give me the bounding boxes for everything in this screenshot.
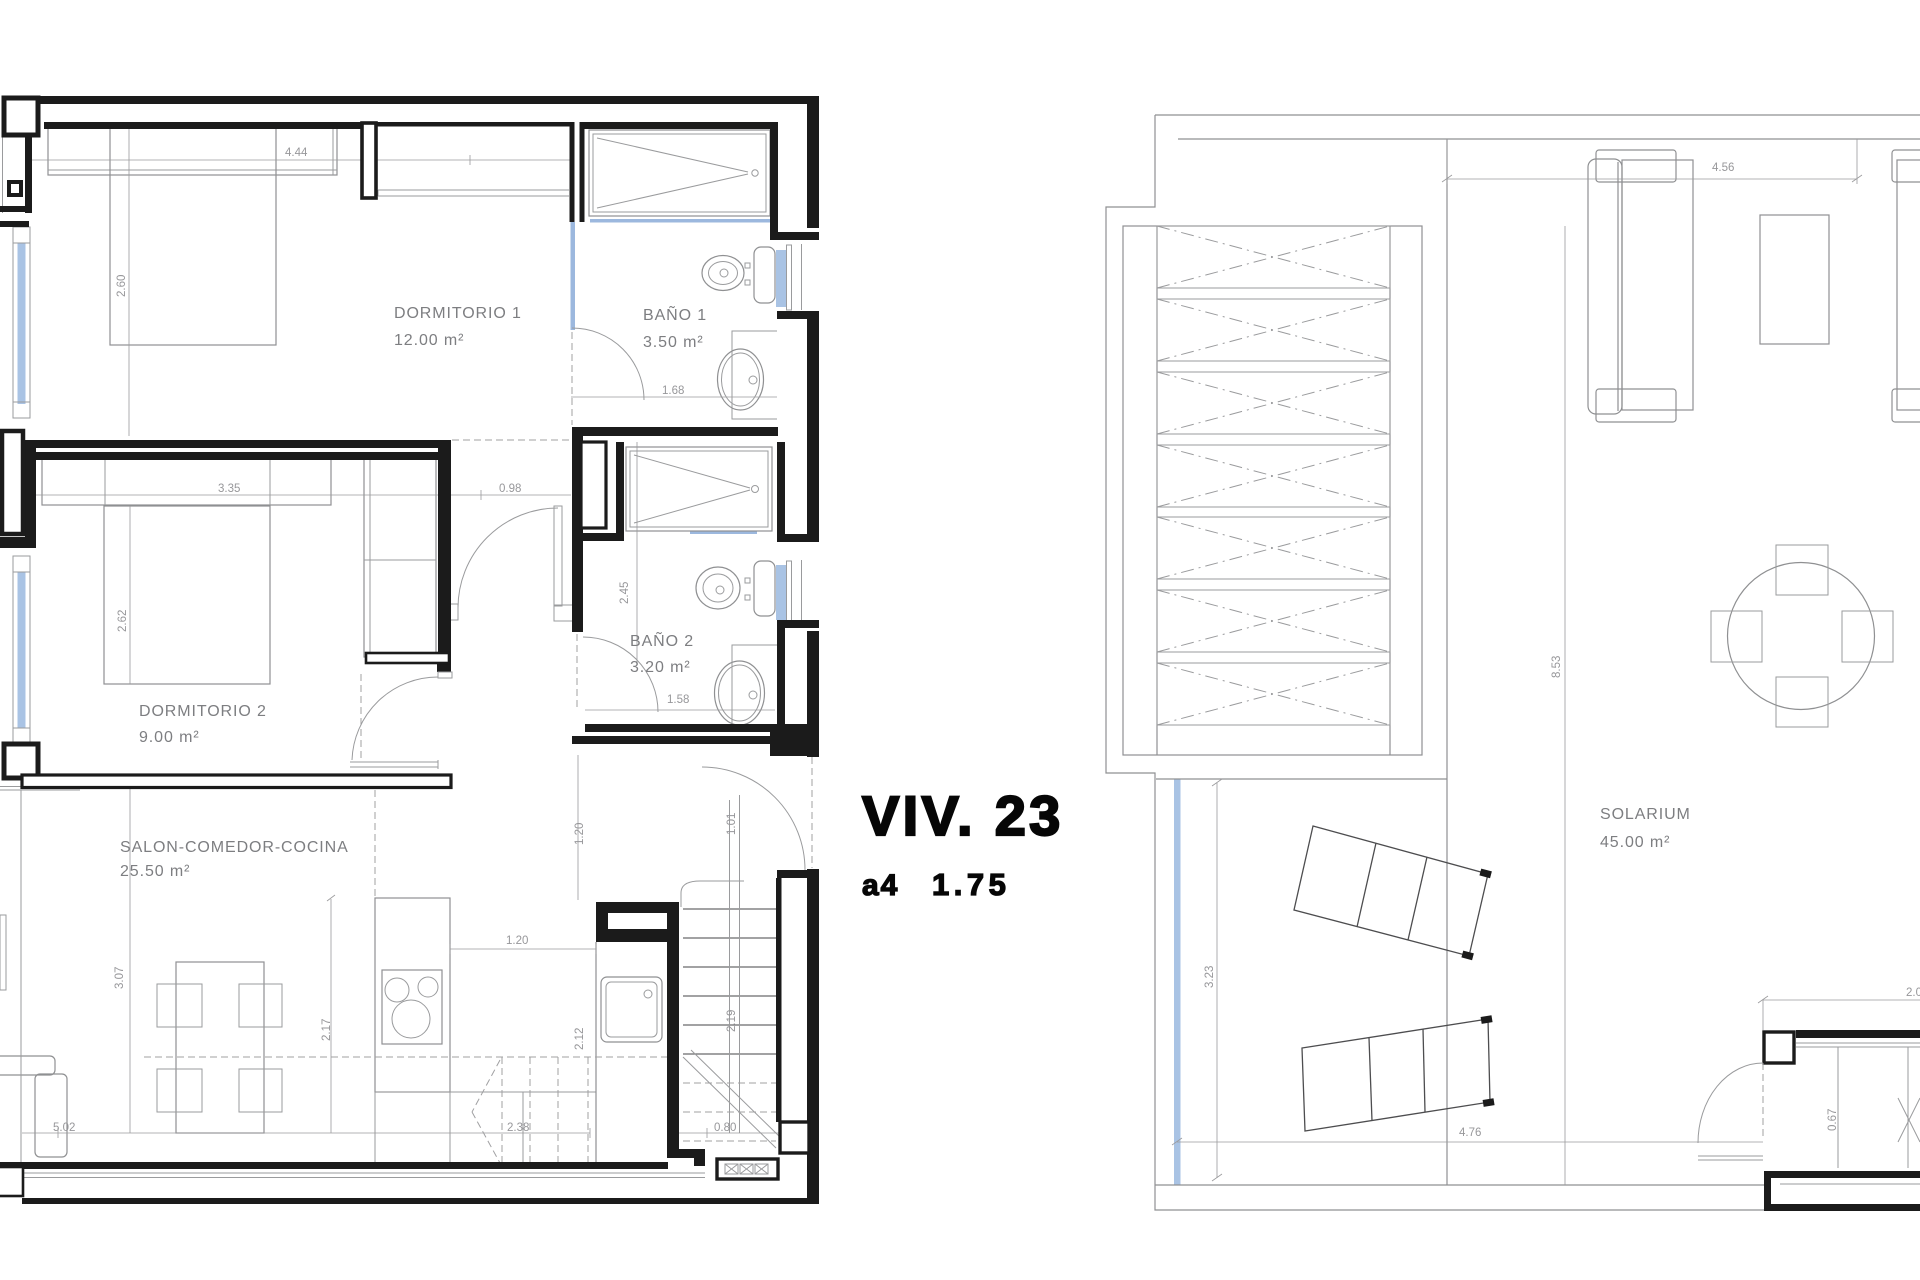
svg-text:0.80: 0.80 [714, 1122, 736, 1134]
svg-text:0.67: 0.67 [1827, 1109, 1839, 1131]
svg-text:3.07: 3.07 [114, 967, 126, 989]
svg-text:VIV. 23: VIV. 23 [862, 784, 1064, 847]
svg-text:5.02: 5.02 [53, 1122, 75, 1134]
svg-text:BAÑO 1: BAÑO 1 [643, 304, 707, 324]
svg-text:SOLARIUM: SOLARIUM [1600, 806, 1691, 823]
svg-text:0.98: 0.98 [499, 483, 521, 495]
svg-text:8.53: 8.53 [1551, 656, 1563, 678]
svg-text:BAÑO 2: BAÑO 2 [630, 630, 694, 650]
svg-text:4.76: 4.76 [1459, 1127, 1481, 1139]
svg-text:4.56: 4.56 [1712, 162, 1734, 174]
svg-text:2.19: 2.19 [726, 1010, 738, 1032]
svg-text:25.50 m²: 25.50 m² [120, 863, 190, 880]
svg-text:2.62: 2.62 [117, 610, 129, 632]
svg-text:1.20: 1.20 [506, 935, 528, 947]
svg-text:9.00 m²: 9.00 m² [139, 729, 200, 746]
svg-text:DORMITORIO 1: DORMITORIO 1 [394, 305, 522, 322]
svg-text:2.12: 2.12 [574, 1028, 586, 1050]
svg-text:1.01: 1.01 [726, 813, 738, 835]
svg-text:2.17: 2.17 [321, 1019, 333, 1041]
svg-text:3.50 m²: 3.50 m² [643, 334, 704, 351]
svg-text:2.07: 2.07 [1906, 987, 1920, 999]
svg-text:2.38: 2.38 [507, 1122, 529, 1134]
svg-text:1.20: 1.20 [574, 823, 586, 845]
svg-text:3.23: 3.23 [1204, 966, 1216, 988]
svg-text:3.20 m²: 3.20 m² [630, 659, 691, 676]
svg-text:12.00 m²: 12.00 m² [394, 332, 464, 349]
svg-text:DORMITORIO 2: DORMITORIO 2 [139, 703, 267, 720]
svg-text:4.44: 4.44 [285, 147, 308, 159]
svg-text:1.68: 1.68 [662, 385, 684, 397]
svg-text:SALON-COMEDOR-COCINA: SALON-COMEDOR-COCINA [120, 839, 349, 856]
svg-text:1.58: 1.58 [667, 694, 689, 706]
svg-text:a4: a4 [862, 869, 899, 902]
svg-text:3.35: 3.35 [218, 483, 240, 495]
svg-text:2.45: 2.45 [619, 582, 631, 604]
svg-text:45.00 m²: 45.00 m² [1600, 834, 1670, 851]
svg-text:1.75: 1.75 [932, 867, 1010, 902]
svg-text:2.60: 2.60 [116, 275, 128, 297]
